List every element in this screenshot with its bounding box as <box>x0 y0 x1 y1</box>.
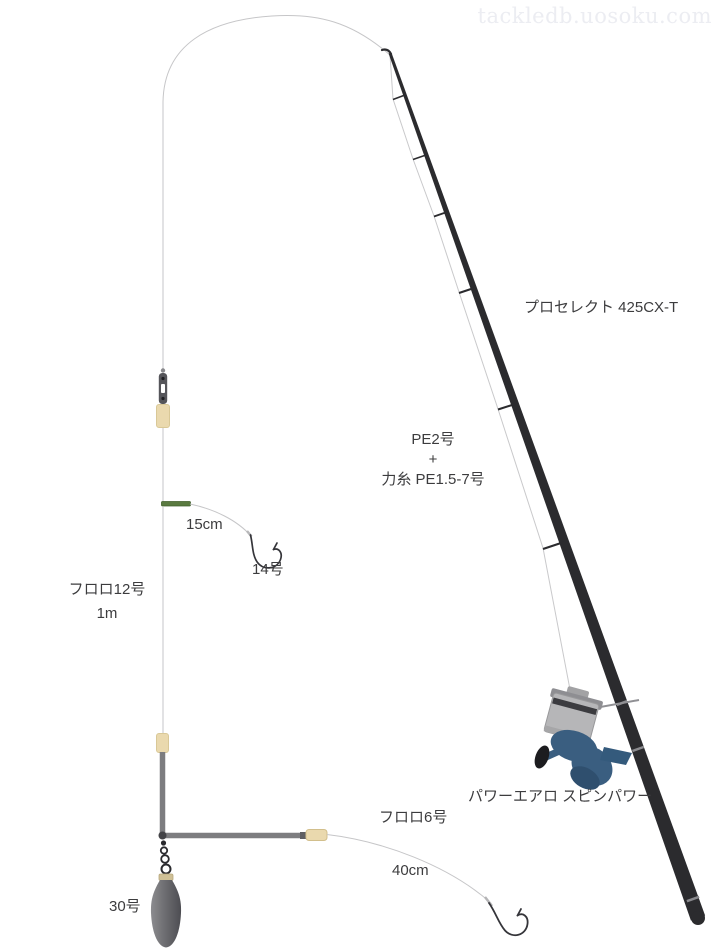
main-line-plus: + <box>353 450 513 470</box>
rod-label: プロセレクト 425CX-T <box>524 299 678 317</box>
watermark: tackledb.uosoku.com <box>478 4 712 28</box>
sinker-collar <box>159 874 173 881</box>
rod-line <box>390 55 572 700</box>
lower-branch-length-label: 40cm <box>392 862 429 880</box>
sinker-weight-label: 30号 <box>109 898 141 916</box>
upper-branch-length-label: 15cm <box>186 516 223 534</box>
arm-bead <box>157 734 169 753</box>
tenbin-corner-joint <box>159 832 167 840</box>
sinker <box>151 880 181 948</box>
branch-stopper <box>162 502 191 507</box>
arm-end-tube <box>306 830 327 841</box>
lower-branch-material-label: フロロ6号 <box>379 809 447 827</box>
leader-material: フロロ12号 <box>47 578 167 602</box>
upper-hook-size-label: 14号 <box>252 561 284 579</box>
main-line-shock-leader: 力糸 PE1.5-7号 <box>353 470 513 490</box>
reel-label: パワーエアロ スピンパワー <box>468 788 652 806</box>
main-line-type: PE2号 <box>353 430 513 450</box>
tackle-diagram: tackledb.uosoku.com プロセレクト 425CX-T PE2号 … <box>0 0 720 950</box>
main-line-label: PE2号 + 力糸 PE1.5-7号 <box>353 430 513 490</box>
lower-hook <box>489 903 528 935</box>
snap-swivel-chain <box>161 840 171 873</box>
casting-line-arc <box>163 15 390 371</box>
leader-label: フロロ12号 1m <box>47 578 167 626</box>
rod-butt-cap <box>691 911 705 925</box>
stopper-bead <box>157 405 170 428</box>
leader-length: 1m <box>47 602 167 626</box>
swivel <box>159 368 167 404</box>
